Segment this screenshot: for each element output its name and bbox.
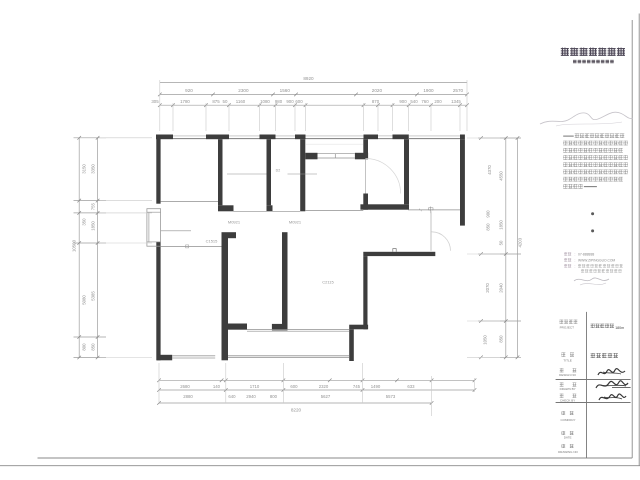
svg-text:755: 755 [91,203,96,211]
svg-text:760: 760 [421,99,429,104]
svg-text:5080: 5080 [82,295,87,305]
svg-text:CHECK BY: CHECK BY [560,398,575,402]
svg-text::: : [575,253,576,257]
svg-text:C2115: C2115 [322,280,334,285]
svg-text:875: 875 [212,99,220,104]
svg-text:5573: 5573 [386,394,396,399]
svg-text:TITLE: TITLE [563,358,571,362]
svg-text:5385: 5385 [91,291,96,301]
svg-text:3150: 3150 [82,164,87,174]
svg-text:2680: 2680 [180,384,190,389]
svg-text:1490: 1490 [371,384,381,389]
svg-text:900: 900 [286,99,294,104]
svg-text:850: 850 [498,335,503,343]
svg-text:200: 200 [434,99,442,104]
svg-text:1850: 1850 [499,220,504,230]
svg-text:540: 540 [410,99,418,104]
svg-text:305: 305 [151,99,159,104]
svg-text:1900: 1900 [423,88,434,93]
svg-text:10500: 10500 [72,239,77,252]
svg-text:1780: 1780 [180,99,190,104]
svg-text:4550: 4550 [499,171,504,181]
svg-text:DRAWN BY: DRAWN BY [560,387,576,391]
svg-text:600: 600 [290,384,298,389]
svg-text:1080: 1080 [260,99,270,104]
svg-text:M0921: M0921 [228,220,241,225]
svg-text:2880: 2880 [183,394,193,399]
svg-text:4370: 4370 [487,165,492,175]
svg-text:850: 850 [486,223,491,231]
svg-text:COMPANY: COMPANY [561,418,576,422]
svg-text:50: 50 [223,99,228,104]
svg-text:180m: 180m [615,326,624,330]
svg-text:DESIGN NO: DESIGN NO [559,373,577,377]
svg-text:PROJECT: PROJECT [560,326,575,330]
svg-text:C1515: C1515 [206,238,219,243]
svg-text:350: 350 [82,218,87,226]
svg-text::: : [575,259,576,263]
svg-text:2020: 2020 [372,88,383,93]
svg-text:1160: 1160 [236,99,246,104]
svg-text:4203: 4203 [518,237,523,247]
svg-text:50: 50 [499,240,504,245]
svg-text:07-888888: 07-888888 [578,253,594,257]
svg-text:1560: 1560 [280,88,291,93]
svg-text:8920: 8920 [303,76,314,81]
svg-text::: : [575,264,576,268]
svg-text:5627: 5627 [321,394,331,399]
svg-text:2940: 2940 [246,394,256,399]
svg-text:2570: 2570 [453,88,464,93]
svg-text:633: 633 [407,384,415,389]
svg-text:850: 850 [91,343,96,351]
svg-text:870: 870 [372,99,380,104]
svg-text:800: 800 [270,394,278,399]
svg-text:800: 800 [82,343,87,351]
svg-text:2300: 2300 [238,88,249,93]
svg-text:M0921: M0921 [289,220,302,225]
svg-text:D2: D2 [276,169,281,173]
svg-text:920: 920 [185,88,193,93]
svg-text:2040: 2040 [498,283,503,293]
svg-text:DRAWING NO: DRAWING NO [558,450,578,454]
svg-text:1710: 1710 [250,384,260,389]
svg-text:980: 980 [275,99,283,104]
svg-text:900: 900 [486,210,491,218]
svg-text:8220: 8220 [291,408,302,413]
svg-text:900: 900 [399,99,407,104]
svg-text:2070: 2070 [485,283,490,293]
svg-text:DATE: DATE [564,436,572,440]
svg-text:2320: 2320 [319,384,329,389]
svg-text:745: 745 [353,384,361,389]
svg-text:1050: 1050 [483,335,488,345]
svg-text:1850: 1850 [91,221,96,231]
svg-text:3350: 3350 [91,164,96,174]
svg-text:640: 640 [228,394,236,399]
svg-text:WWW.ZIPINGGUO.COM: WWW.ZIPINGGUO.COM [578,259,615,263]
svg-text:140: 140 [213,384,221,389]
